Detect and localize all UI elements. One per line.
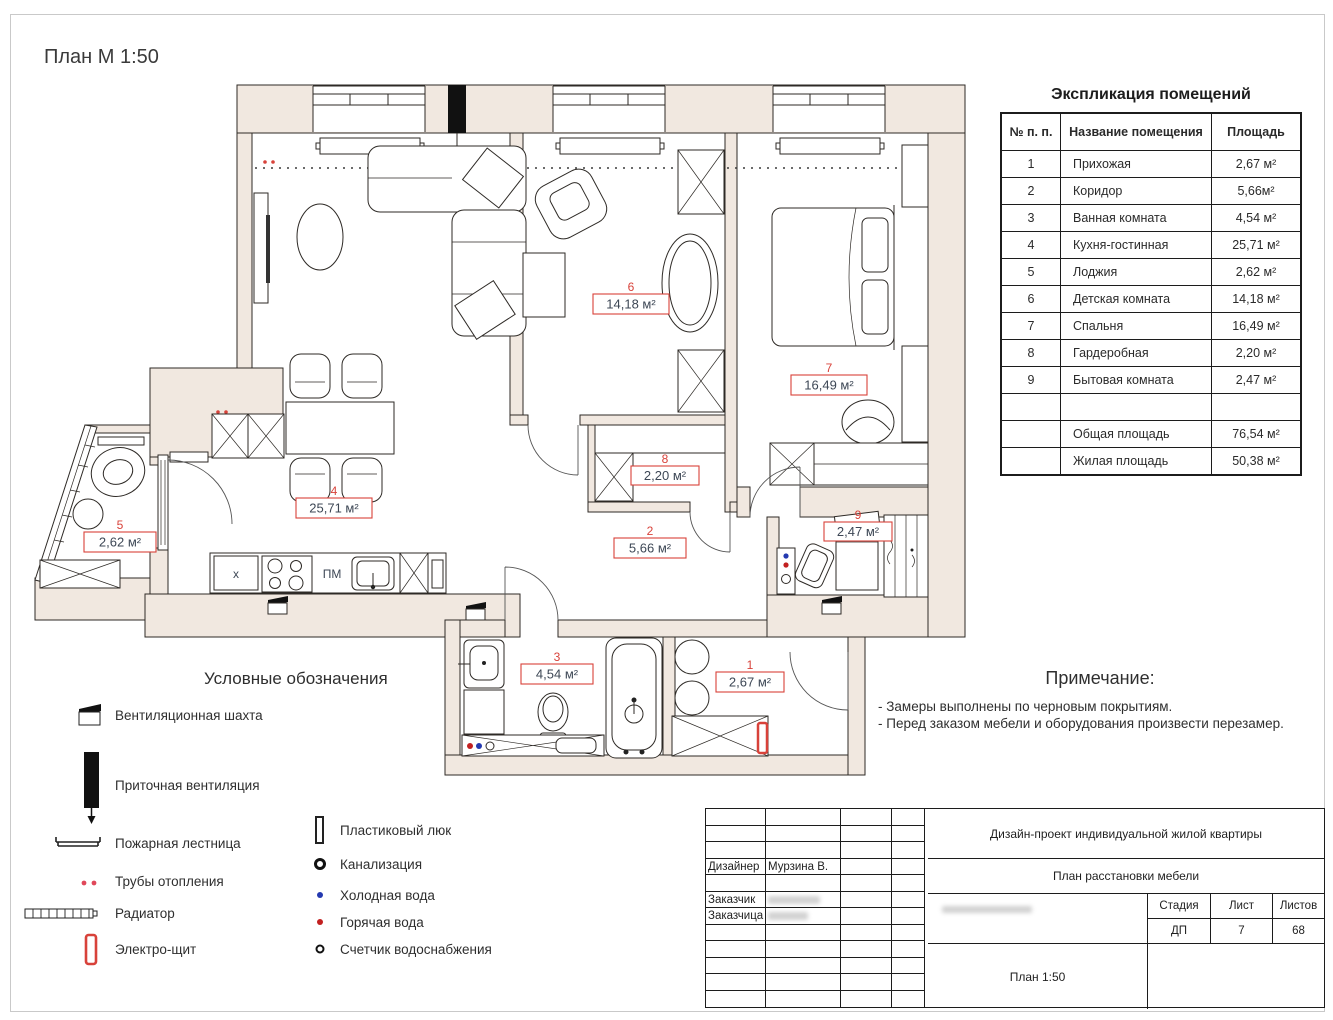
illegible-signature (768, 912, 808, 920)
table-row: 9Бытовая комната2,47 м² (1001, 367, 1301, 394)
plastic-hatch-icon (312, 815, 328, 845)
scale-value: План 1:50 (928, 944, 1148, 1009)
scale-row: План 1:50 (928, 944, 1324, 1009)
bedroom-armchair (842, 400, 894, 444)
col-header-area: Площадь (1212, 113, 1302, 151)
notes-title: Примечание: (878, 668, 1322, 689)
chair (290, 354, 330, 398)
title-block-right: Дизайн-проект индивидуальной жилой кварт… (928, 809, 1324, 1007)
water-meter-icon (312, 941, 328, 957)
tv (266, 215, 270, 283)
cold-water-icon (312, 887, 328, 903)
hallway-furniture (672, 640, 768, 756)
svg-text:7: 7 (826, 361, 833, 375)
svg-text:25,71 м²: 25,71 м² (309, 501, 359, 516)
stage-label: Стадия (1148, 894, 1210, 919)
laundry-zone (462, 735, 604, 756)
col-header-name: Название помещения (1061, 113, 1212, 151)
svg-text:9: 9 (855, 508, 862, 522)
bedroom-wardrobe (770, 443, 928, 485)
supply-vent-icon (82, 752, 102, 824)
pouf (675, 681, 709, 715)
utility-sink (793, 542, 836, 590)
illegible-signature (768, 896, 820, 904)
explication-title: Экспликация помещений (1000, 86, 1302, 104)
cabinet (902, 346, 928, 442)
desk (523, 253, 565, 317)
armchair (530, 164, 612, 244)
svg-text:4,54 м²: 4,54 м² (536, 667, 579, 682)
table-row-total: Жилая площадь50,38 м² (1001, 448, 1301, 476)
children-room-furniture (523, 150, 724, 412)
svg-text:4: 4 (331, 484, 338, 498)
svg-text:5,66 м²: 5,66 м² (629, 541, 672, 556)
svg-text:1: 1 (747, 658, 754, 672)
dining-table (286, 402, 394, 454)
table-row-total: Общая площадь76,54 м² (1001, 421, 1301, 448)
svg-text:2,20 м²: 2,20 м² (644, 468, 687, 483)
title-block-grid: ДизайнерМурзина В. Заказчик Заказчица (706, 809, 928, 1007)
table-row: 4Кухня-гостинная25,71 м² (1001, 232, 1301, 259)
table-row: 2Коридор5,66м² (1001, 178, 1301, 205)
table-row: 5Лоджия2,62 м² (1001, 259, 1301, 286)
project-title: Дизайн-проект индивидуальной жилой кварт… (928, 809, 1324, 859)
loggia-door-frame (158, 455, 168, 550)
legend-title: Условные обозначения (204, 669, 388, 689)
window-bedroom (773, 86, 885, 132)
stage-value: ДП (1148, 919, 1210, 944)
chair (342, 458, 382, 502)
svg-text:2,67 м²: 2,67 м² (729, 675, 772, 690)
table-row: 8Гардеробная2,20 м² (1001, 340, 1301, 367)
living-room-furniture (212, 146, 526, 502)
sofa (368, 146, 526, 339)
bathroom-sink (458, 640, 504, 688)
designer-name: Мурзина В. (766, 859, 841, 876)
illegible-text (942, 906, 1032, 913)
sewerage-icon (312, 856, 328, 872)
window-living (313, 86, 425, 132)
svg-text:3: 3 (554, 650, 561, 664)
electric-panel-icon (82, 933, 102, 967)
sheet-label: Лист (1211, 894, 1272, 919)
crib (662, 234, 718, 332)
loggia-shelf (98, 437, 144, 445)
bathtub (606, 638, 662, 758)
bathroom-cabinet (464, 690, 504, 734)
client-label: Заказчица (706, 908, 766, 925)
svg-text:16,49 м²: 16,49 м² (804, 378, 854, 393)
pillow (862, 218, 888, 272)
fire-ladder-icon (54, 834, 102, 852)
note-line: - Перед заказом мебели и оборудования пр… (878, 716, 1322, 731)
kitchen-sink (352, 557, 394, 590)
explication-panel: Экспликация помещений № п. п. Название п… (1000, 86, 1302, 476)
table-row-empty (1001, 394, 1301, 421)
svg-text:2: 2 (647, 524, 654, 538)
stage-row: Стадия ДП Лист 7 Листов 68 (928, 894, 1324, 944)
vent-shaft-icon (78, 703, 104, 727)
cabinets (212, 414, 284, 458)
window-children (553, 86, 665, 132)
svg-text:8: 8 (662, 452, 669, 466)
wardrobe-room (595, 425, 725, 501)
bed (772, 205, 894, 350)
explication-table: № п. п. Название помещения Площадь 1Прих… (1000, 112, 1302, 476)
coffee-table (297, 204, 343, 270)
stove (262, 556, 312, 592)
kitchen-cabinet-label: x (233, 567, 239, 581)
sheets-value: 68 (1273, 919, 1324, 944)
table-row: 7Спальня16,49 м² (1001, 313, 1301, 340)
nightstand (902, 145, 928, 207)
svg-text:2,47 м²: 2,47 м² (837, 524, 880, 539)
bath-mat (556, 738, 596, 753)
loggia-chair (84, 440, 151, 504)
svg-text:2,62 м²: 2,62 м² (99, 535, 142, 550)
client-label: Заказчик (706, 892, 766, 909)
title-block: ДизайнерМурзина В. Заказчик Заказчица Ди… (705, 808, 1325, 1008)
svg-text:14,18 м²: 14,18 м² (606, 297, 656, 312)
tv-console (254, 193, 268, 303)
chair (290, 458, 330, 502)
designer-label: Дизайнер (706, 859, 766, 876)
water-panel (777, 548, 795, 594)
drawing-title: План расстановки мебели (928, 859, 1324, 894)
dishwasher-label: ПМ (323, 567, 342, 581)
notes-panel: Примечание: - Замеры выполнены по чернов… (878, 668, 1322, 733)
table-row: 1Прихожая2,67 м² (1001, 151, 1301, 178)
clothes-rail (595, 425, 725, 453)
heating-pipes-icon (78, 874, 102, 888)
bedroom-furniture (770, 145, 928, 485)
chair (342, 354, 382, 398)
pillow (862, 280, 888, 334)
svg-text:5: 5 (117, 518, 124, 532)
table-row: 3Ванная комната4,54 м² (1001, 205, 1301, 232)
svg-text:6: 6 (628, 280, 635, 294)
pouf (675, 640, 709, 674)
hot-water-icon (312, 914, 328, 930)
hall-wardrobe (672, 716, 768, 756)
dining-set (286, 354, 394, 502)
sheets-label: Листов (1273, 894, 1324, 919)
col-header-num: № п. п. (1001, 113, 1061, 151)
note-line: - Замеры выполнены по черновым покрытиям… (878, 699, 1322, 714)
loggia-table (73, 499, 103, 529)
sheet-value: 7 (1211, 919, 1272, 944)
radiator-icon (24, 906, 100, 922)
table-row: 6Детская комната14,18 м² (1001, 286, 1301, 313)
